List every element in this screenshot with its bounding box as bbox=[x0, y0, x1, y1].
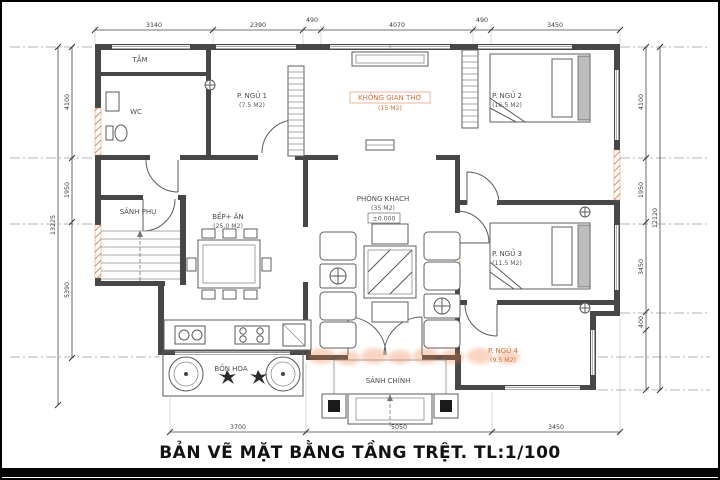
room-label-sanh-phu: SẢNH PHỤ bbox=[120, 207, 157, 216]
room-label-khach: PHÒNG KHÁCH bbox=[357, 194, 410, 203]
dim-label: 3450 bbox=[638, 259, 645, 275]
flower-bed bbox=[163, 352, 303, 396]
dim-label: 490 bbox=[476, 17, 488, 24]
room-area-ngu1: (7.5 M2) bbox=[239, 102, 265, 109]
bottom-border-bar bbox=[0, 468, 720, 477]
entrance-porch bbox=[322, 360, 458, 426]
room-label-tam: TẮM bbox=[131, 54, 147, 64]
room-area-tho: (15 M2) bbox=[378, 105, 402, 112]
room-area-bep: (25.0 M2) bbox=[213, 223, 243, 230]
room-area-ngu4: (9.5 M2) bbox=[490, 357, 516, 364]
room-label-wc: WC bbox=[130, 108, 142, 116]
room-label-tho: KHÔNG GIAN THỜ bbox=[358, 93, 422, 102]
room-area-ngu2: (16.5 M2) bbox=[492, 102, 522, 109]
floor-plan-drawing: 3140 2390 490 4070 490 3450 3700 5050 34… bbox=[0, 0, 720, 480]
room-area-khach: (35 M2) bbox=[371, 205, 395, 212]
room-area-ngu3: (11.5 M2) bbox=[492, 260, 522, 267]
dim-label: 13225 bbox=[50, 215, 57, 235]
bush-icon bbox=[250, 370, 267, 384]
room-label-bon-hoa: BỒN HOA bbox=[214, 363, 247, 373]
dim-label: 490 bbox=[306, 17, 318, 24]
dim-label: 4100 bbox=[638, 94, 645, 110]
room-label-bep: BẾP+ ĂN bbox=[212, 211, 244, 221]
kitchen-counter bbox=[164, 320, 311, 350]
room-label-ngu2: P. NGỦ 2 bbox=[492, 90, 522, 100]
dim-label: 1950 bbox=[64, 182, 71, 198]
room-label-ngu3: P. NGỦ 3 bbox=[492, 248, 522, 258]
dim-label: 2390 bbox=[250, 22, 266, 29]
dining-table bbox=[187, 229, 271, 299]
room-label-sanh-chinh: SẢNH CHÍNH bbox=[366, 376, 411, 385]
dim-label: 3450 bbox=[547, 22, 563, 29]
floor-plan-page: 3140 2390 490 4070 490 3450 3700 5050 34… bbox=[0, 0, 720, 480]
drawing-title: BẢN VẼ MẶT BẰNG TẦNG TRỆT. TL:1/100 bbox=[0, 443, 720, 463]
dim-label: 12120 bbox=[652, 208, 659, 228]
bed bbox=[490, 54, 590, 122]
dim-label: 1950 bbox=[638, 182, 645, 198]
staircase bbox=[101, 230, 180, 281]
sofa-set bbox=[320, 224, 460, 348]
dim-label: 3140 bbox=[146, 22, 162, 29]
dim-label: 3450 bbox=[548, 424, 564, 431]
dim-label: 3700 bbox=[230, 424, 246, 431]
wc-fixtures bbox=[106, 92, 127, 141]
room-label-ngu4: P. NGỦ 4 bbox=[488, 345, 519, 355]
dim-label: 4070 bbox=[389, 22, 405, 29]
dim-label: 4100 bbox=[64, 94, 71, 110]
dim-label: 5390 bbox=[64, 282, 71, 298]
dim-label: 5050 bbox=[391, 424, 407, 431]
dim-label: 400 bbox=[638, 316, 645, 328]
room-label-ngu1: P. NGỦ 1 bbox=[237, 90, 267, 100]
level-mark: ±0.000 bbox=[373, 216, 396, 223]
